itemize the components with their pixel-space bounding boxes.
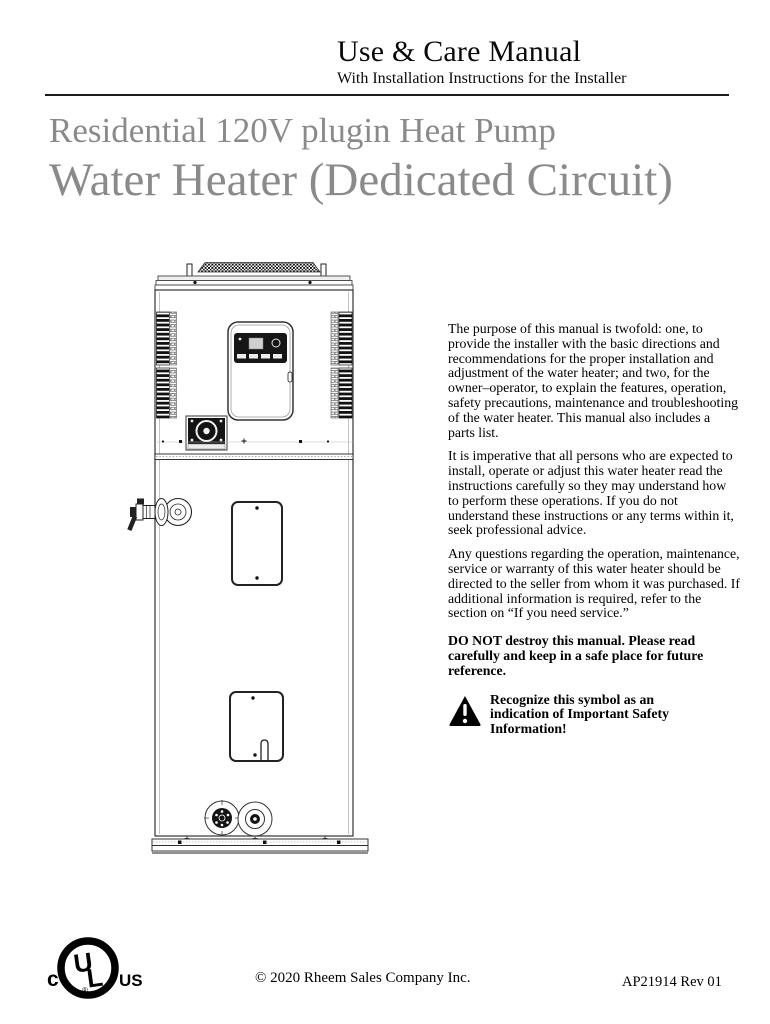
fan-assembly <box>186 416 227 450</box>
copyright-line: © 2020 Rheem Sales Company Inc. <box>255 970 471 987</box>
intro-text-column: The purpose of this manual is twofold: o… <box>448 322 740 737</box>
top-vent-grille <box>198 263 320 273</box>
intro-paragraph-2: It is imperative that all persons who ar… <box>448 449 740 538</box>
panel-latch <box>288 372 292 382</box>
product-title: Residential 120V plugin Heat Pump Water … <box>49 110 673 208</box>
header-block: Use & Care Manual With Installation Inst… <box>337 36 627 88</box>
ul-logo-us: US <box>119 971 143 990</box>
manual-subtitle: With Installation Instructions for the I… <box>337 70 627 88</box>
safety-symbol-note: Recognize this symbol as an indication o… <box>448 693 740 737</box>
top-fitting-left <box>187 264 192 276</box>
top-cap-ring2 <box>155 285 353 290</box>
top-cap-ring <box>156 281 352 286</box>
warning-triangle-icon <box>448 695 482 727</box>
water-heater-illustration <box>123 250 373 860</box>
cap-rivet <box>308 281 311 284</box>
document-number: AP21914 Rev 01 <box>622 974 722 991</box>
top-cap <box>158 276 350 281</box>
manual-title: Use & Care Manual <box>337 36 627 68</box>
control-panel <box>228 322 293 420</box>
ul-logo-c: c <box>47 968 59 991</box>
lower-access-panel <box>230 692 283 761</box>
safety-note-text: Recognize this symbol as an indication o… <box>490 693 715 737</box>
intro-paragraph-1: The purpose of this manual is twofold: o… <box>448 322 740 440</box>
right-side-vents <box>331 312 352 418</box>
header-divider <box>45 94 729 96</box>
base-ring <box>152 837 368 854</box>
ul-certification-logo: c U L ® US <box>38 931 143 1009</box>
product-title-line2: Water Heater (Dedicated Circuit) <box>49 152 673 208</box>
upper-access-panel <box>232 502 282 585</box>
intro-paragraph-3: Any questions regarding the operation, m… <box>448 547 740 621</box>
ul-logo-registered: ® <box>82 986 88 995</box>
cap-rivet <box>193 281 196 284</box>
left-side-vents <box>157 312 177 418</box>
manual-cover-page: Use & Care Manual With Installation Inst… <box>0 0 770 1024</box>
top-fitting-right <box>321 264 326 276</box>
do-not-destroy-notice: DO NOT destroy this manual. Please read … <box>448 634 740 678</box>
product-title-line1: Residential 120V plugin Heat Pump <box>49 110 673 152</box>
condensate-fitting <box>238 802 272 836</box>
